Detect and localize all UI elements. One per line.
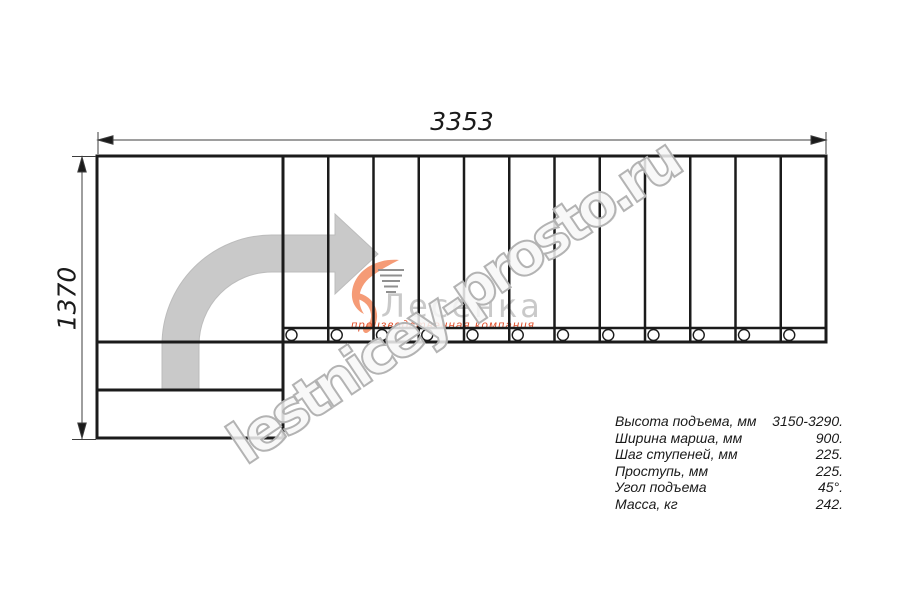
spec-label: Шаг ступеней, мм bbox=[615, 446, 738, 463]
baluster-circle bbox=[558, 330, 569, 341]
spec-row: Ширина марша, мм900. bbox=[615, 430, 843, 447]
spec-row: Высота подъема, мм3150-3290. bbox=[615, 413, 843, 430]
spec-label: Масса, кг bbox=[615, 496, 678, 513]
spec-label: Угол подъема bbox=[615, 479, 707, 496]
spec-value: 225. bbox=[816, 446, 843, 463]
spec-label: Проступь, мм bbox=[615, 463, 708, 480]
baluster-circle bbox=[739, 330, 750, 341]
landing-step-1 bbox=[97, 342, 283, 390]
spec-value: 3150-3290. bbox=[772, 413, 843, 430]
dimension-width-label: 3353 bbox=[402, 107, 522, 136]
baluster-circle bbox=[603, 330, 614, 341]
dim-width-arrow-left bbox=[98, 136, 113, 144]
baluster-circle bbox=[693, 330, 704, 341]
spec-row: Угол подъема45°. bbox=[615, 479, 843, 496]
dimension-height-label: 1370 bbox=[53, 264, 82, 334]
specs-table: Высота подъема, мм3150-3290.Ширина марша… bbox=[615, 413, 843, 513]
spec-value: 242. bbox=[816, 496, 843, 513]
spec-row: Масса, кг242. bbox=[615, 496, 843, 513]
staircase-plan-page: Лесенка производственная компания bbox=[0, 0, 900, 600]
spec-row: Шаг ступеней, мм225. bbox=[615, 446, 843, 463]
spec-label: Высота подъема, мм bbox=[615, 413, 757, 430]
landing-platform bbox=[97, 156, 283, 342]
baluster-circle bbox=[784, 330, 795, 341]
spec-row: Проступь, мм225. bbox=[615, 463, 843, 480]
spec-value: 45°. bbox=[818, 479, 843, 496]
dim-height-arrow-bottom bbox=[78, 423, 86, 438]
dim-width-arrow-right bbox=[811, 136, 826, 144]
baluster-circle bbox=[512, 330, 523, 341]
spec-label: Ширина марша, мм bbox=[615, 430, 742, 447]
dim-height-arrow-top bbox=[78, 157, 86, 172]
spec-value: 225. bbox=[816, 463, 843, 480]
baluster-circle bbox=[286, 330, 297, 341]
spec-value: 900. bbox=[816, 430, 843, 447]
baluster-circle bbox=[648, 330, 659, 341]
